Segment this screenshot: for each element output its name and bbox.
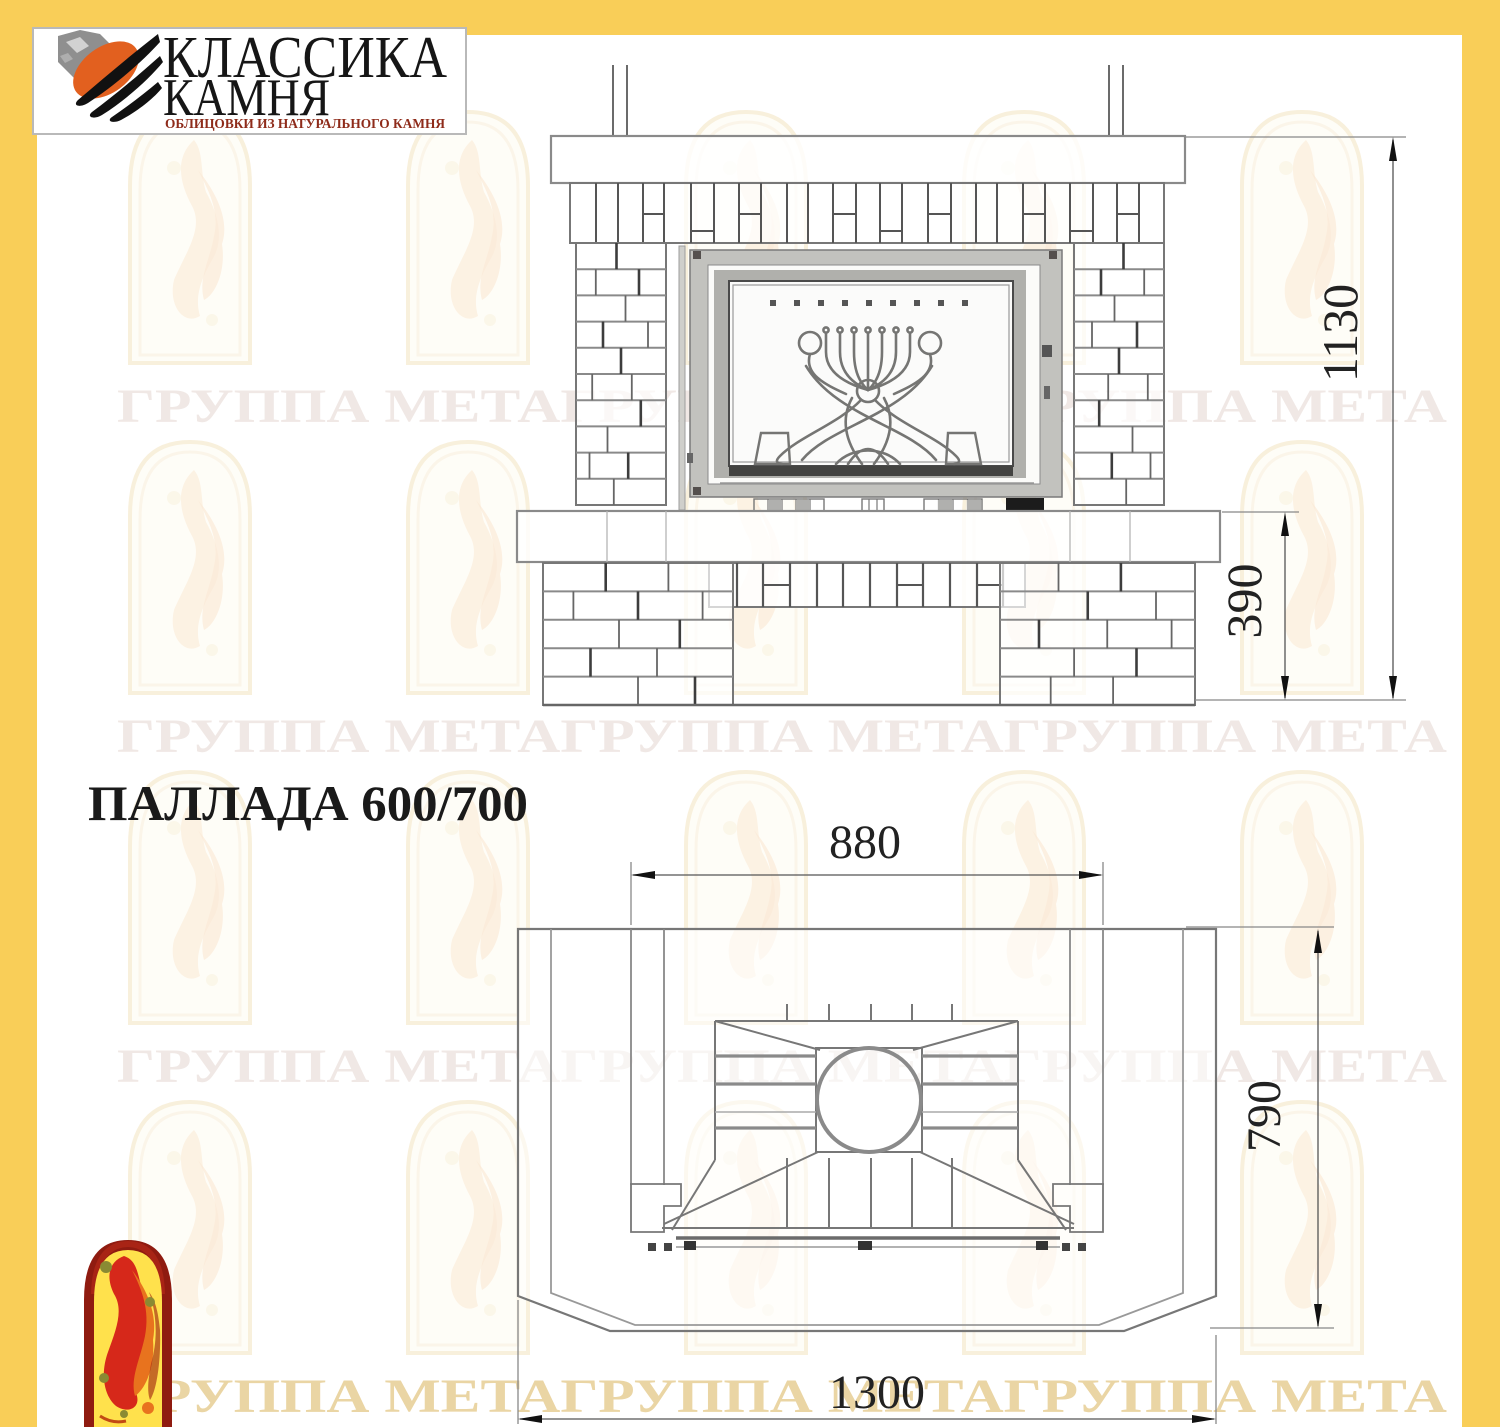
svg-text:1300: 1300 — [829, 1366, 925, 1419]
svg-text:ГРУППА МЕТАГРУППА МЕТАГРУППА М: ГРУППА МЕТАГРУППА МЕТАГРУППА МЕТА — [117, 1370, 1447, 1423]
svg-text:ГРУППА МЕТАГРУППА МЕТАГРУППА М: ГРУППА МЕТАГРУППА МЕТАГРУППА МЕТА — [117, 710, 1447, 763]
svg-text:1130: 1130 — [1312, 284, 1368, 382]
svg-text:390: 390 — [1216, 564, 1272, 639]
svg-text:790: 790 — [1238, 1080, 1291, 1152]
svg-text:ПАЛЛАДА 600/700: ПАЛЛАДА 600/700 — [88, 775, 528, 831]
svg-text:880: 880 — [829, 816, 901, 869]
svg-text:ОБЛИЦОВКИ ИЗ НАТУРАЛЬНОГО КАМН: ОБЛИЦОВКИ ИЗ НАТУРАЛЬНОГО КАМНЯ — [165, 116, 445, 131]
